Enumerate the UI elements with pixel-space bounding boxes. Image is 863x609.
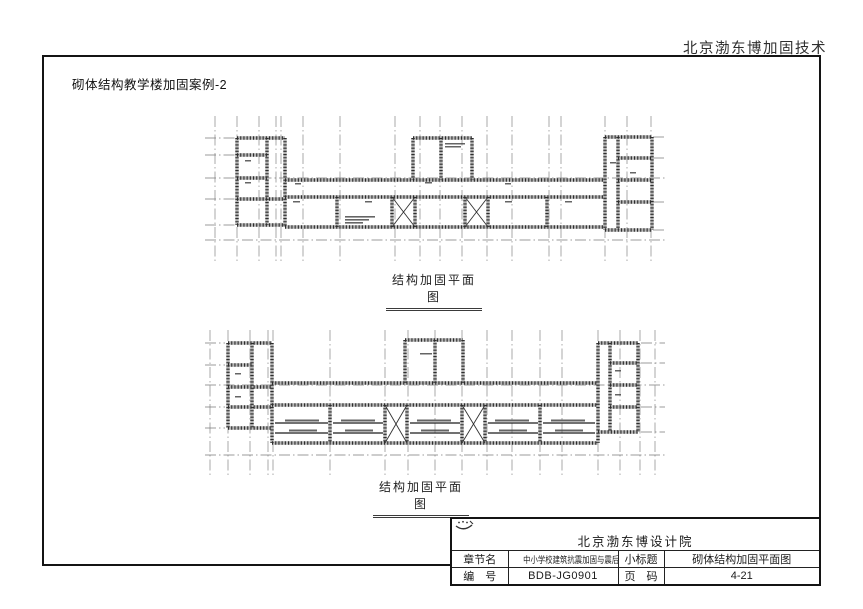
chapter-value: 中小学校建筑抗震加固与震后恢复: [508, 551, 618, 568]
page-label: 页 码: [618, 568, 664, 586]
subtitle-value: 砌体结构加固平面图: [664, 551, 820, 568]
bottom-plan-caption: 结构加固平面图: [373, 478, 469, 518]
institute-logo-icon: [454, 519, 474, 531]
number-value: BDB-JG0901: [508, 568, 618, 586]
subtitle-label: 小标题: [618, 551, 664, 568]
number-label: 编 号: [451, 568, 508, 586]
chapter-label: 章节名: [451, 551, 508, 568]
page-value: 4-21: [664, 568, 820, 586]
page-title: 砌体结构教学楼加固案例-2: [72, 74, 227, 93]
wall-lines-hatch: [228, 340, 638, 443]
company-cell: 北京渤东博设计院: [451, 518, 820, 551]
wall-lines-base: [228, 340, 638, 443]
top-plan-caption: 结构加固平面图: [386, 271, 482, 311]
company-name: 北京渤东博设计院: [577, 535, 693, 549]
annotation-marks: [235, 353, 621, 432]
title-block: 北京渤东博设计院 章节名 中小学校建筑抗震加固与震后恢复 小标题 砌体结构加固平…: [450, 517, 821, 586]
bottom-floor-plan: [205, 328, 665, 478]
top-floor-plan: [205, 112, 665, 272]
